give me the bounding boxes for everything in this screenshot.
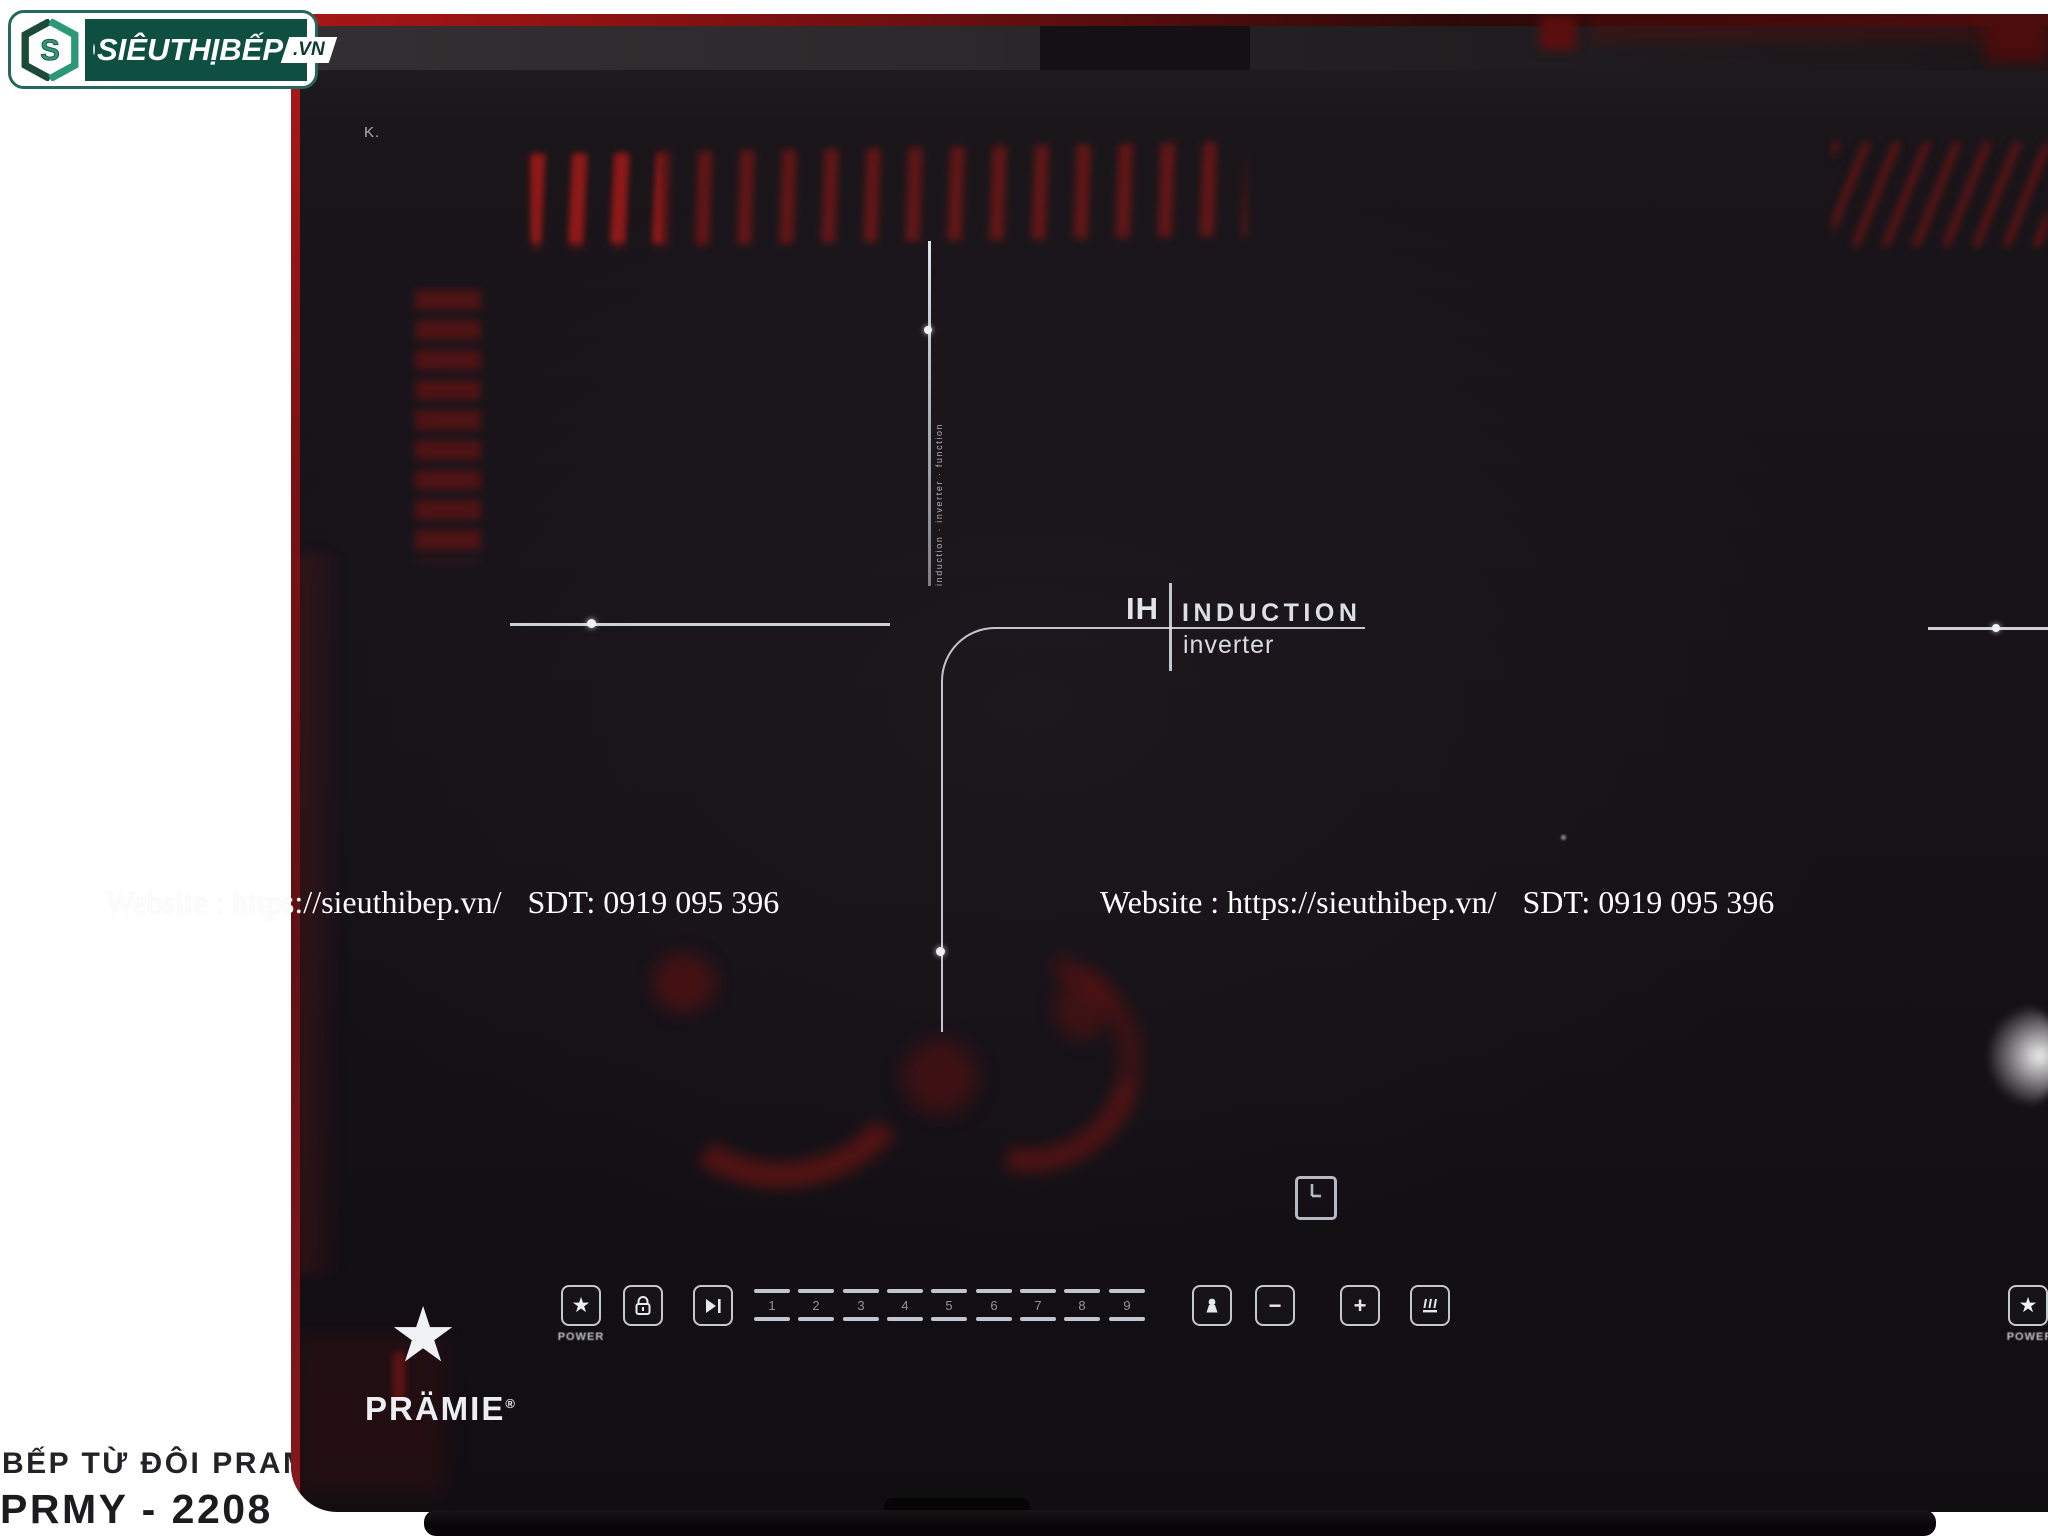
watermark-phone: SDT: 0919 095 396 <box>1523 884 1775 921</box>
digit-label: 8 <box>1078 1299 1085 1312</box>
digit-label: 7 <box>1034 1299 1041 1312</box>
light-reflection-blob <box>1989 1007 2048 1105</box>
caption-model-number: PRMY - 2208 <box>0 1486 273 1533</box>
digit-key-1: 1 <box>754 1289 790 1321</box>
plus-button: + <box>1340 1285 1380 1326</box>
zone-divider-vertical-line <box>928 241 931 586</box>
registered-mark: ® <box>505 1396 517 1411</box>
zone-marker-dot <box>936 947 945 956</box>
minus-icon: − <box>1269 1295 1282 1317</box>
digit-overline <box>798 1289 834 1293</box>
digit-key-5: 5 <box>931 1289 967 1321</box>
zone-divider-curve <box>941 627 1365 1032</box>
watermark-left: Website : https://sieuthibep.vn/ SDT: 09… <box>105 884 779 921</box>
power-star-icon: ★ <box>2019 1295 2038 1316</box>
padlock-icon <box>633 1295 653 1317</box>
digit-overline <box>1020 1289 1056 1293</box>
watermark-site: Website : https://sieuthibep.vn/ <box>105 884 502 921</box>
digit-underline <box>798 1317 834 1321</box>
logo-monogram: S <box>40 34 60 67</box>
logo-wordmark: SIÊUTHỊBẾP <box>97 32 283 68</box>
sieuthibep-logo: S SIÊUTHỊBẾP .VN <box>8 10 318 89</box>
booster-button <box>1192 1285 1232 1326</box>
digit-key-7: 7 <box>1020 1289 1056 1321</box>
digit-underline <box>931 1317 967 1321</box>
clock-hands-icon <box>1298 1179 1328 1211</box>
red-patch <box>1540 16 1576 50</box>
ih-badge-induction: INDUCTION <box>1182 599 1361 628</box>
play-pause-icon <box>703 1297 723 1315</box>
digit-key-6: 6 <box>976 1289 1012 1321</box>
digit-overline <box>1064 1289 1100 1293</box>
power-button-right: ★ <box>2008 1285 2048 1326</box>
digit-overline <box>931 1289 967 1293</box>
pramie-star-icon: ★ <box>389 1298 457 1374</box>
ih-badge-divider <box>1169 583 1172 671</box>
digit-underline <box>976 1317 1012 1321</box>
brand-name: PRÄMIE <box>365 1390 505 1427</box>
ih-badge-ih: IH <box>1126 591 1159 627</box>
digit-key-9: 9 <box>1109 1289 1145 1321</box>
digit-overline <box>887 1289 923 1293</box>
minus-button: − <box>1255 1285 1295 1326</box>
digit-underline <box>887 1317 923 1321</box>
red-reflection-top-right <box>1591 14 2048 44</box>
timer-select-button <box>693 1285 733 1326</box>
light-speck <box>1561 835 1566 840</box>
heat-reflection-stripes-right <box>1833 142 2048 246</box>
digit-label: 3 <box>857 1299 864 1312</box>
plus-icon: + <box>1354 1295 1367 1317</box>
watermark-site: Website : https://sieuthibep.vn/ <box>1100 884 1497 921</box>
digit-underline <box>1064 1317 1100 1321</box>
power-star-icon: ★ <box>572 1295 591 1316</box>
left-zone-crosshair-line <box>510 623 890 626</box>
grill-lines-icon <box>1420 1297 1440 1315</box>
power-label-right: POWER <box>2003 1331 2048 1343</box>
digit-underline <box>843 1317 879 1321</box>
digit-label: 9 <box>1123 1299 1130 1312</box>
digit-underline <box>754 1317 790 1321</box>
right-zone-crosshair-line <box>1928 627 2048 630</box>
zone-divider-micro-text: induction · inverter · function <box>934 372 944 586</box>
heat-reflection-blocks-left <box>415 290 481 562</box>
digit-label: 1 <box>768 1299 775 1312</box>
digit-overline <box>976 1289 1012 1293</box>
zone-marker-dot <box>1992 624 2000 632</box>
screenshot: BẾP TỪ ĐÔI PRAMIE PRMY - 2208 K. inducti… <box>0 0 2048 1536</box>
digit-overline <box>843 1289 879 1293</box>
digit-key-3: 3 <box>843 1289 879 1321</box>
timer-clock-icon <box>1295 1176 1337 1220</box>
digit-overline <box>1109 1289 1145 1293</box>
logo-small-circle-icon <box>93 44 95 55</box>
digit-overline <box>754 1289 790 1293</box>
digit-key-2: 2 <box>798 1289 834 1321</box>
watermark-center: Website : https://sieuthibep.vn/ SDT: 09… <box>1100 884 1774 921</box>
top-bezel-dark-patch <box>1040 25 1250 71</box>
pramie-wordmark: PRÄMIE® <box>365 1390 517 1428</box>
digit-label: 4 <box>901 1299 908 1312</box>
digit-key-4: 4 <box>887 1289 923 1321</box>
ih-badge-inverter: inverter <box>1183 631 1274 660</box>
watermark-phone: SDT: 0919 095 396 <box>528 884 780 921</box>
lock-button <box>623 1285 663 1326</box>
front-bumper-shadow <box>424 1510 1936 1536</box>
pot-icon <box>1203 1296 1221 1316</box>
zone-marker-dot <box>924 326 932 334</box>
logo-panel: SIÊUTHỊBẾP .VN <box>85 19 307 81</box>
digit-label: 5 <box>945 1299 952 1312</box>
digit-key-8: 8 <box>1064 1289 1100 1321</box>
red-reflection-blob <box>903 1040 977 1114</box>
power-label: POWER <box>554 1331 608 1343</box>
logo-tld-text: .VN <box>293 39 325 61</box>
red-patch <box>1985 14 2048 62</box>
grill-button <box>1410 1285 1450 1326</box>
zone-marker-dot <box>587 619 596 628</box>
red-reflection-blob <box>653 954 715 1012</box>
glass-corner-mark: K. <box>364 124 380 141</box>
logo-tld-badge: .VN <box>281 37 337 63</box>
digit-label: 2 <box>812 1299 819 1312</box>
power-button: ★ <box>561 1285 601 1326</box>
cooktop-photo: K. induction · inverter · function IH IN… <box>291 14 2048 1512</box>
digit-label: 6 <box>990 1299 997 1312</box>
hexagon-s-icon: S <box>21 19 79 81</box>
digit-underline <box>1020 1317 1056 1321</box>
top-bezel-fade <box>291 70 2048 96</box>
digit-underline <box>1109 1317 1145 1321</box>
heat-reflection-stripes-top-bright <box>531 154 661 242</box>
